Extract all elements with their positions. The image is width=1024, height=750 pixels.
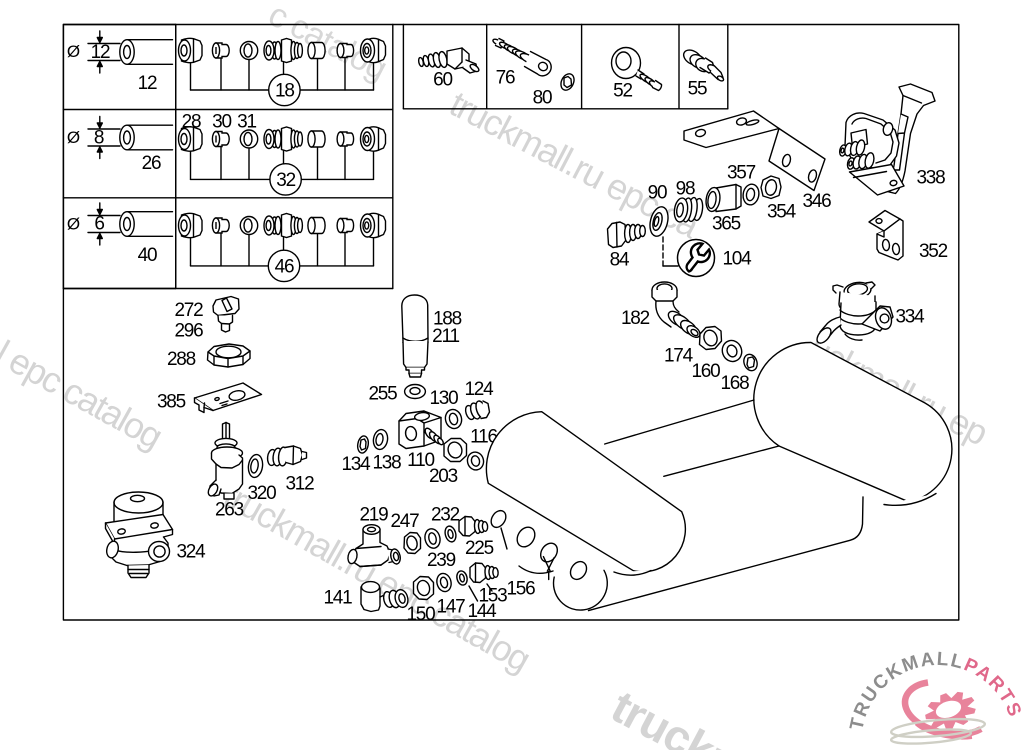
svg-text:80: 80	[533, 88, 552, 109]
svg-text:203: 203	[429, 466, 458, 487]
svg-text:30: 30	[212, 112, 231, 133]
svg-text:32: 32	[276, 170, 295, 191]
svg-text:352: 352	[919, 241, 948, 262]
svg-text:Ø: Ø	[67, 42, 80, 61]
svg-text:52: 52	[613, 81, 632, 102]
svg-text:182: 182	[621, 308, 650, 329]
svg-text:Ø: Ø	[67, 215, 80, 234]
svg-text:76: 76	[496, 68, 515, 89]
svg-text:150: 150	[406, 604, 435, 625]
svg-text:296: 296	[174, 321, 203, 342]
svg-text:288: 288	[167, 349, 196, 370]
svg-text:232: 232	[431, 505, 460, 526]
svg-text:104: 104	[722, 249, 752, 270]
svg-text:225: 225	[465, 538, 494, 559]
svg-text:Ø: Ø	[67, 128, 80, 147]
svg-text:153: 153	[478, 586, 507, 607]
svg-text:357: 357	[727, 163, 756, 184]
svg-text:338: 338	[916, 168, 945, 189]
svg-text:334: 334	[895, 307, 925, 328]
svg-text:141: 141	[323, 588, 352, 609]
svg-text:354: 354	[767, 202, 797, 223]
svg-text:263: 263	[215, 500, 244, 521]
svg-text:320: 320	[247, 483, 276, 504]
svg-text:124: 124	[464, 379, 494, 400]
svg-text:55: 55	[688, 79, 707, 100]
svg-text:12: 12	[138, 73, 157, 94]
svg-text:46: 46	[275, 256, 294, 277]
svg-text:28: 28	[182, 112, 201, 133]
svg-text:60: 60	[433, 70, 452, 91]
svg-text:272: 272	[174, 300, 203, 321]
svg-text:98: 98	[676, 179, 695, 200]
svg-text:6: 6	[94, 214, 104, 235]
svg-text:174: 174	[664, 346, 694, 367]
svg-text:346: 346	[802, 191, 831, 212]
svg-text:312: 312	[285, 474, 314, 495]
svg-text:31: 31	[237, 112, 256, 133]
svg-text:90: 90	[648, 183, 667, 204]
svg-text:130: 130	[429, 388, 458, 409]
svg-text:84: 84	[610, 250, 630, 271]
svg-text:40: 40	[138, 245, 157, 266]
svg-text:8: 8	[94, 128, 104, 149]
svg-text:211: 211	[432, 326, 459, 347]
svg-text:255: 255	[368, 384, 397, 405]
svg-text:247: 247	[390, 511, 419, 532]
svg-text:18: 18	[275, 81, 294, 102]
svg-text:160: 160	[691, 361, 720, 382]
svg-text:219: 219	[359, 505, 388, 526]
svg-text:134: 134	[341, 454, 371, 475]
svg-text:156: 156	[506, 579, 535, 600]
svg-text:26: 26	[142, 153, 161, 174]
svg-text:12: 12	[91, 42, 110, 63]
svg-text:324: 324	[176, 542, 206, 563]
svg-text:147: 147	[436, 597, 465, 618]
svg-text:385: 385	[157, 392, 186, 413]
svg-text:365: 365	[712, 214, 741, 235]
svg-text:168: 168	[720, 373, 749, 394]
svg-text:239: 239	[427, 550, 456, 571]
svg-text:138: 138	[372, 453, 401, 474]
